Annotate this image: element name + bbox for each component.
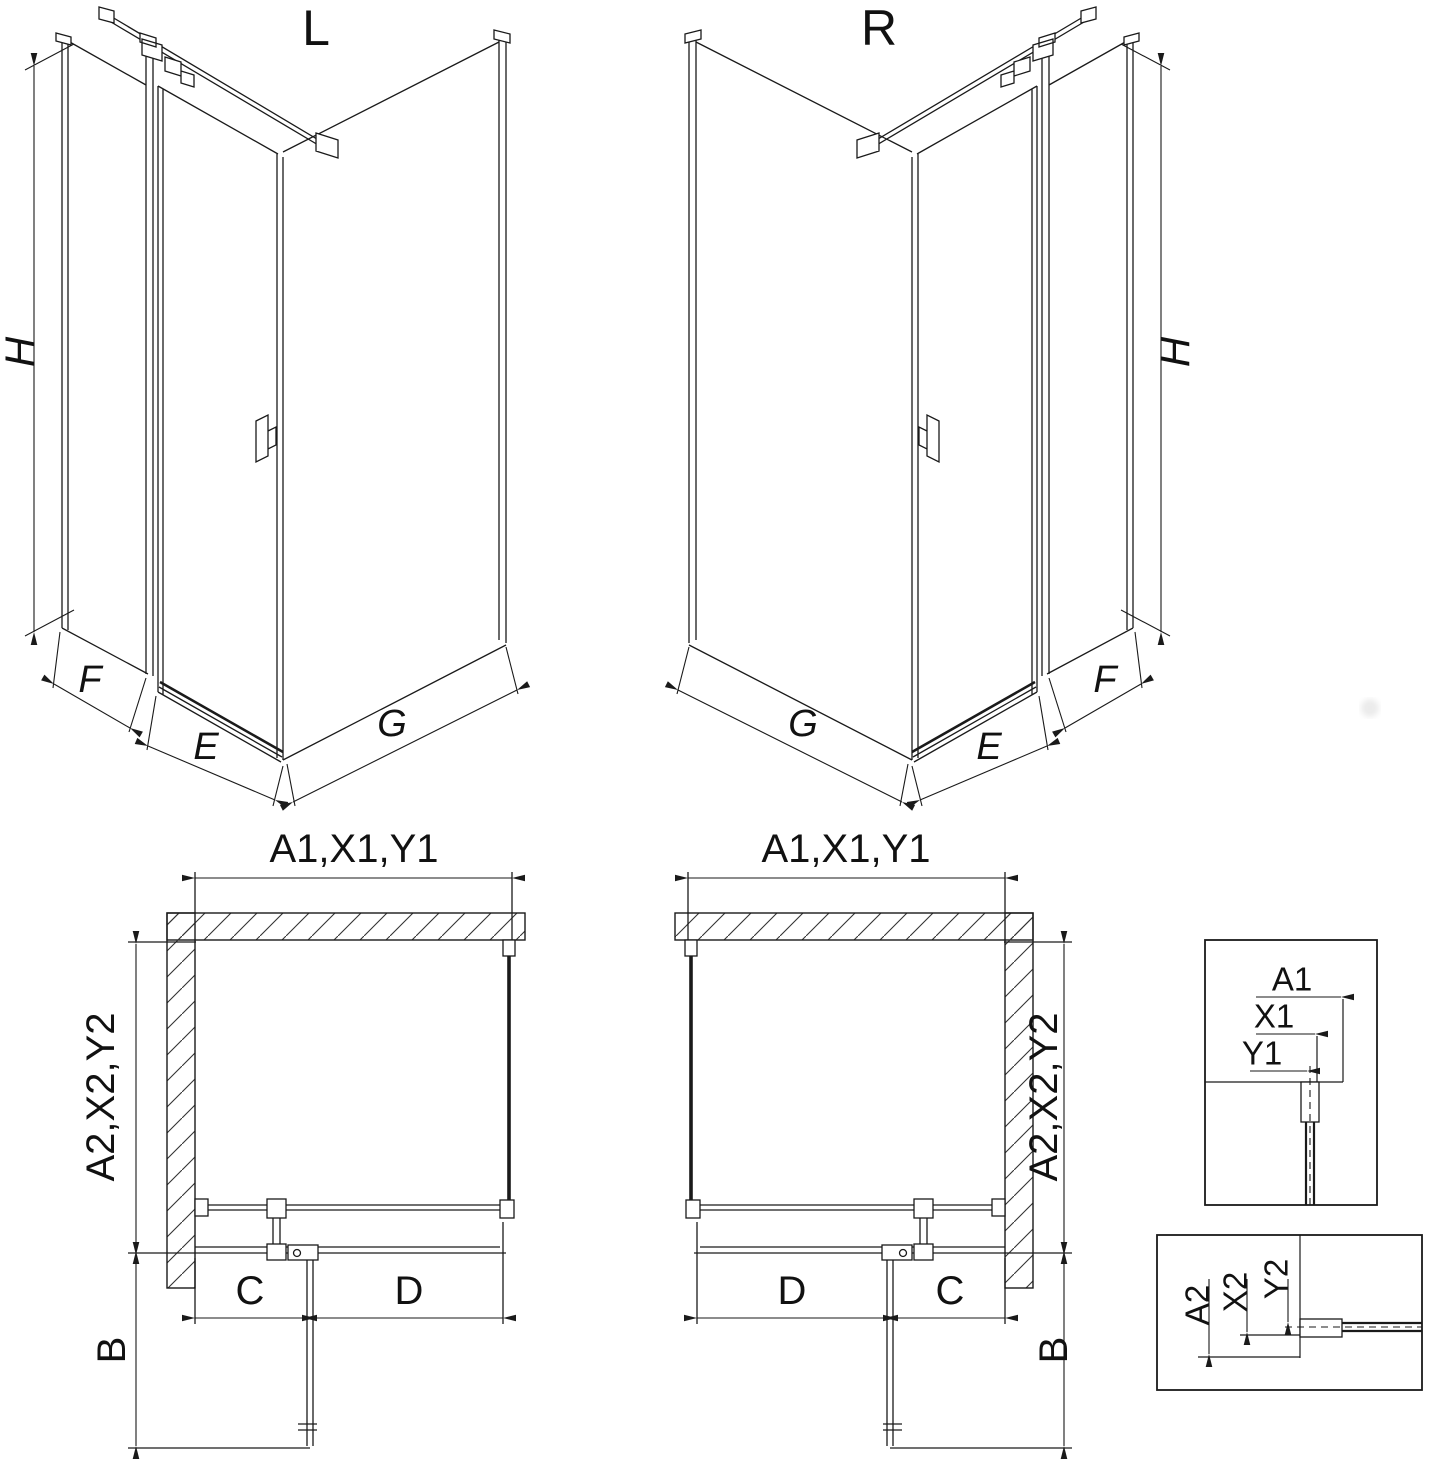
plan-right-door-dim-label: D [778,1269,807,1313]
plan-left-door-dim-label: D [395,1269,424,1313]
wall-hatch-right-plan-top [675,913,1033,940]
door-dim-label-left: E [193,726,219,768]
wall-profile [1300,1319,1342,1337]
detail-x1-label: X1 [1254,998,1294,1035]
detail-y1-label: Y1 [1242,1035,1282,1072]
watermark-dot [1361,699,1379,717]
plan-right-top-dim-label: A1,X1,Y1 [761,827,930,871]
labels: L R H H F E G F E G A1,X1,Y1 A2,X2,Y2 B … [0,0,1312,1363]
plan-right-fixed-dim-label: C [936,1269,965,1313]
detail-a1-label: A1 [1272,961,1312,998]
plan-right-side-dim-label: A2,X2,Y2 [1022,1012,1066,1181]
height-dim-label-right: H [1152,336,1199,367]
plan-right-swing-dim-label: B [1032,1337,1076,1364]
detail-a2-label: A2 [1179,1285,1216,1325]
side-panel-dim-label-left: F [78,659,103,701]
plan-left-swing-dim-label: B [90,1337,134,1364]
wall-dim-label-left: G [377,703,407,745]
wall-sections [167,913,1033,1288]
wall-hatch-left-plan-top [167,913,525,940]
left-view-title: L [302,0,330,56]
side-panel-dim-label-right: F [1093,659,1118,701]
plan-left-top-dim-label: A1,X1,Y1 [269,827,438,871]
height-dim-label-left: H [0,336,44,367]
shower-enclosure-dimension-diagram: L R H H F E G F E G A1,X1,Y1 A2,X2,Y2 B … [0,0,1430,1460]
door-dim-label-right: E [976,726,1002,768]
plan-left-fixed-dim-label: C [236,1269,265,1313]
detail-y2-label: Y2 [1258,1259,1295,1299]
diagram-canvas: L R H H F E G F E G A1,X1,Y1 A2,X2,Y2 B … [0,0,1430,1460]
wall-dim-label-right: G [788,703,818,745]
detail-x2-label: X2 [1217,1272,1254,1312]
wall-hatch-left-plan-side [167,913,195,1288]
plan-left-side-dim-label: A2,X2,Y2 [79,1012,123,1181]
right-view-title: R [861,0,897,56]
